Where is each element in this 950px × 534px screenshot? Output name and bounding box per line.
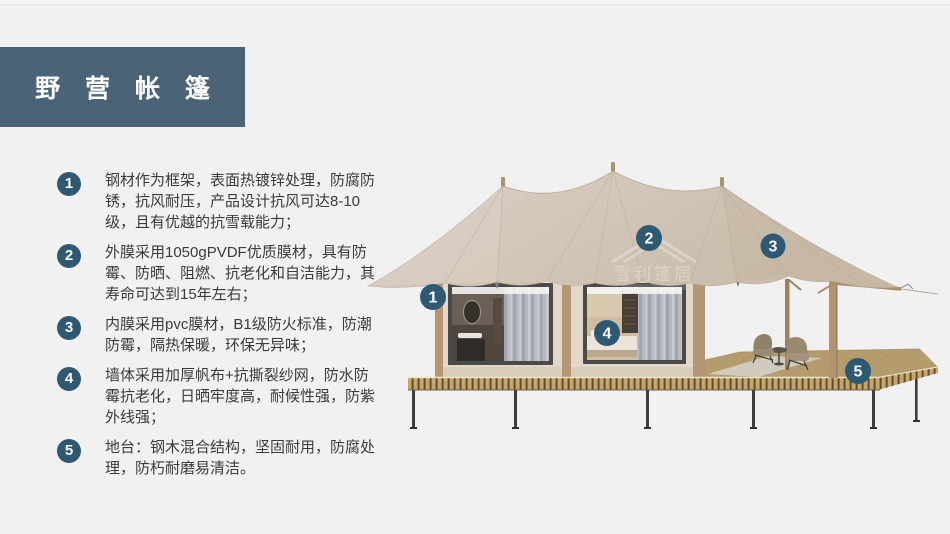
- feature-list: 1 钢材作为框架，表面热镀锌处理，防腐防锈，抗风耐压，产品设计抗风可达8-10级…: [57, 170, 383, 488]
- feature-badge-1: 1: [57, 172, 81, 196]
- svg-text:4: 4: [603, 326, 612, 343]
- tent-illustration: 雪利篷居 1 2 3 4 5: [360, 150, 950, 450]
- feature-item-1: 1 钢材作为框架，表面热镀锌处理，防腐防锈，抗风耐压，产品设计抗风可达8-10级…: [57, 170, 383, 233]
- svg-text:5: 5: [854, 364, 863, 381]
- svg-text:1: 1: [429, 290, 438, 307]
- feature-text-4: 墙体采用加厚帆布+抗撕裂纱网，防水防霉抗老化，日晒牢度高，耐候性强，防紫外线强；: [105, 365, 377, 428]
- slide-top-strip: [0, 0, 950, 5]
- svg-text:3: 3: [769, 239, 778, 256]
- title-block: 野 营 帐 篷: [0, 47, 245, 127]
- svg-text:2: 2: [645, 231, 654, 248]
- feature-badge-5: 5: [57, 439, 81, 463]
- feature-text-2: 外膜采用1050gPVDF优质膜材，具有防霉、防晒、阻燃、抗老化和自洁能力，其寿…: [105, 242, 377, 305]
- callout-badge-3: 3: [761, 234, 786, 259]
- feature-text-3: 内膜采用pvc膜材，B1级防火标准，防潮防霉，隔热保暖，环保无异味；: [105, 314, 377, 356]
- bathroom-window: [448, 283, 553, 365]
- callout-badge-1: 1: [420, 284, 446, 310]
- feature-badge-4: 4: [57, 367, 81, 391]
- page-title: 野 营 帐 篷: [35, 69, 219, 105]
- feature-item-4: 4 墙体采用加厚帆布+抗撕裂纱网，防水防霉抗老化，日晒牢度高，耐候性强，防紫外线…: [57, 365, 383, 428]
- feature-item-2: 2 外膜采用1050gPVDF优质膜材，具有防霉、防晒、阻燃、抗老化和自洁能力，…: [57, 242, 383, 305]
- feature-text-1: 钢材作为框架，表面热镀锌处理，防腐防锈，抗风耐压，产品设计抗风可达8-10级，且…: [105, 170, 377, 233]
- feature-item-5: 5 地台：钢木混合结构，坚固耐用，防腐处理，防朽耐磨易清洁。: [57, 437, 383, 479]
- callout-badge-2: 2: [636, 225, 662, 251]
- cabin: [435, 279, 741, 377]
- feature-badge-3: 3: [57, 316, 81, 340]
- watermark-text: 雪利篷居: [614, 265, 694, 284]
- canopy-tip-rope: [901, 284, 938, 294]
- feature-badge-2: 2: [57, 244, 81, 268]
- feature-text-5: 地台：钢木混合结构，坚固耐用，防腐处理，防朽耐磨易清洁。: [105, 437, 377, 479]
- callout-badge-5: 5: [845, 358, 871, 384]
- callout-badge-4: 4: [594, 320, 620, 346]
- feature-item-3: 3 内膜采用pvc膜材，B1级防火标准，防潮防霉，隔热保暖，环保无异味；: [57, 314, 383, 356]
- porch-front-post: [829, 280, 837, 378]
